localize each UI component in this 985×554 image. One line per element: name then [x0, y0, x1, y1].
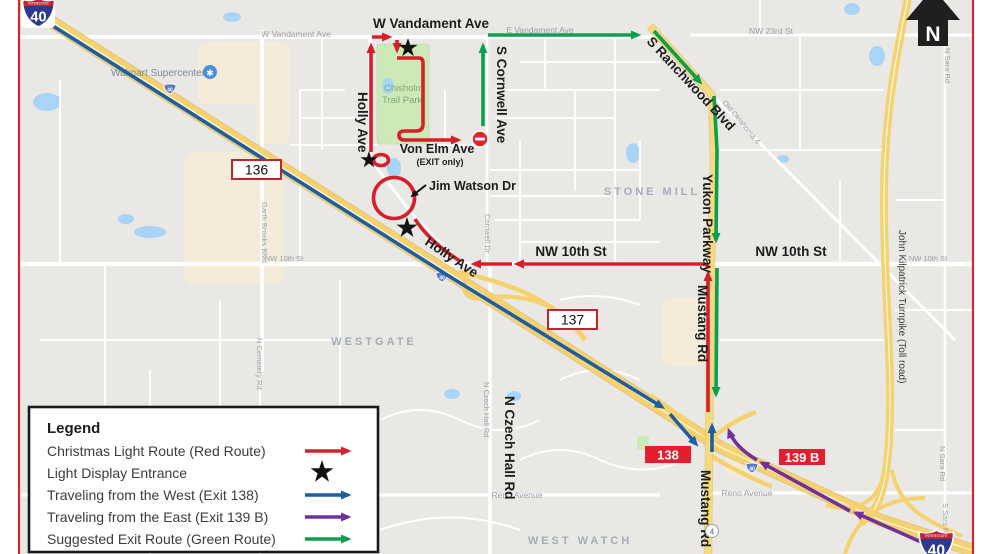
street-label-yukon-parkway: Yukon Parkway	[700, 174, 715, 274]
street-label-w-vandament-big: W Vandament Ave	[373, 16, 490, 31]
poi-label-park-line2: Trail Park	[382, 95, 423, 106]
street-label-czech-hall-big: N Czech Hall Rd	[502, 396, 517, 500]
street-label-exit-only: (EXIT only)	[417, 157, 464, 167]
street-label-czech-hall-small: N Czech Hall Rd	[482, 382, 491, 437]
legend-item-entrance: Light Display Entrance	[47, 465, 187, 481]
street-label-nw10-center: NW 10th St	[535, 244, 607, 259]
shield-136-number: 136	[245, 162, 269, 178]
street-label-s-cornwell: S Cornwell Ave	[494, 46, 509, 144]
street-label-jim-watson: Jim Watson Dr	[429, 179, 516, 193]
legend-title: Legend	[47, 420, 100, 437]
route-4-number: 4	[710, 528, 715, 537]
street-label-cornwell-dr: Cornwell Dr	[483, 214, 492, 254]
north-arrow-label: N	[925, 23, 940, 46]
street-label-kilpatrick: John Kilpatrick Turnpike (Toll road)	[896, 230, 907, 383]
legend: Legend Christmas Light Route (Red Route)…	[29, 407, 378, 552]
street-label-von-elm: Von Elm Ave	[400, 142, 475, 156]
shield-137: 137	[548, 310, 597, 329]
street-label-nw10-small-left: NW 10th St	[265, 254, 304, 263]
street-label-nw10-right: NW 10th St	[755, 244, 827, 259]
shield-137-number: 137	[561, 312, 585, 328]
street-label-w-vandament-small: W Vandament Ave	[261, 29, 331, 39]
street-label-n-cemetery: N Cemetery Rd	[255, 338, 264, 390]
street-label-nw10-small-right: NW 10th St	[909, 254, 948, 263]
no-entry-icon	[472, 131, 488, 147]
legend-item-red-route: Christmas Light Route (Red Route)	[47, 443, 266, 459]
map-canvas: INTERSTATE 40 40	[0, 0, 985, 554]
legend-item-exit-route: Suggested Exit Route (Green Route)	[47, 531, 276, 547]
walmart-store-icon: ✱	[203, 65, 217, 79]
area-label-westgate: WESTGATE	[331, 336, 417, 348]
svg-text:✱: ✱	[206, 68, 214, 78]
exit-139b-badge: 139 B	[779, 449, 825, 465]
street-label-n-sara-mid: N Sara Rd	[938, 446, 947, 481]
exit-138-number: 138	[657, 448, 679, 463]
green-route-mustang-south	[716, 268, 717, 394]
street-label-n-sara-top: N Sara Rd	[943, 48, 952, 83]
route-map-page: INTERSTATE 40 40	[0, 0, 985, 554]
poi-label-park-line1: Chisholm	[384, 83, 424, 94]
area-label-stone-mill: STONE MILL	[604, 186, 700, 198]
exit-139b-number: 139 B	[785, 450, 820, 465]
shield-136: 136	[232, 160, 281, 179]
legend-item-from-east: Traveling from the East (Exit 139 B)	[47, 509, 268, 525]
legend-item-from-west: Traveling from the West (Exit 138)	[47, 487, 259, 503]
street-label-reno-right: Reno Avenue	[722, 488, 773, 498]
street-label-nw-23rd: NW 23rd St	[749, 26, 794, 36]
street-label-holly-vertical: Holly Ave	[355, 92, 370, 153]
route-4-shield: 4	[706, 525, 719, 538]
street-label-mustang-mid: Mustang Rd	[695, 285, 710, 362]
i40-shield-bottom-right	[919, 530, 954, 554]
area-label-west-watch: WEST WATCH	[528, 535, 632, 547]
exit-138-badge: 138	[645, 446, 691, 463]
